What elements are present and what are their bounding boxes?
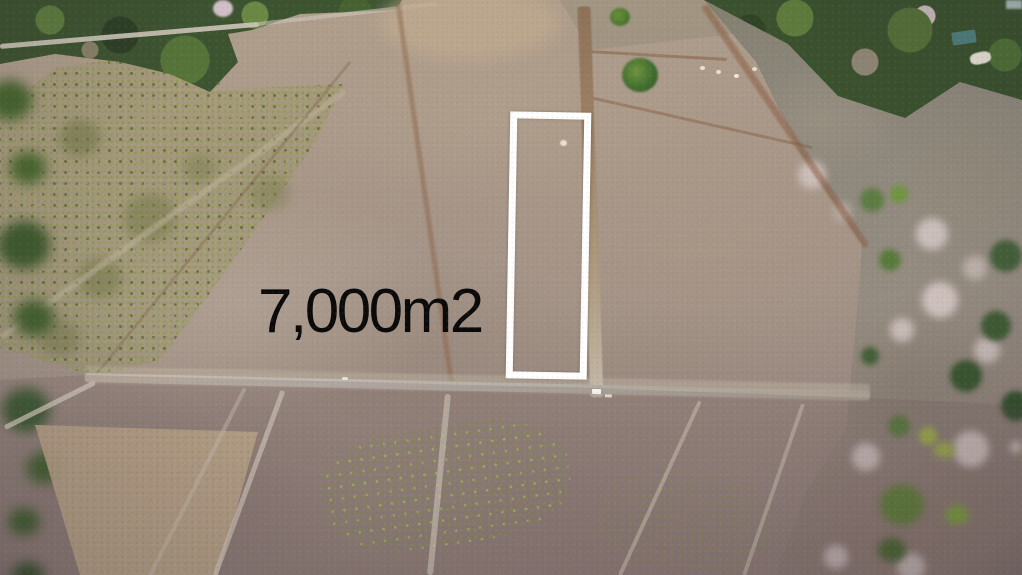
photo-vignette — [0, 0, 1022, 575]
aerial-photo: 7,000m2 — [0, 0, 1022, 575]
